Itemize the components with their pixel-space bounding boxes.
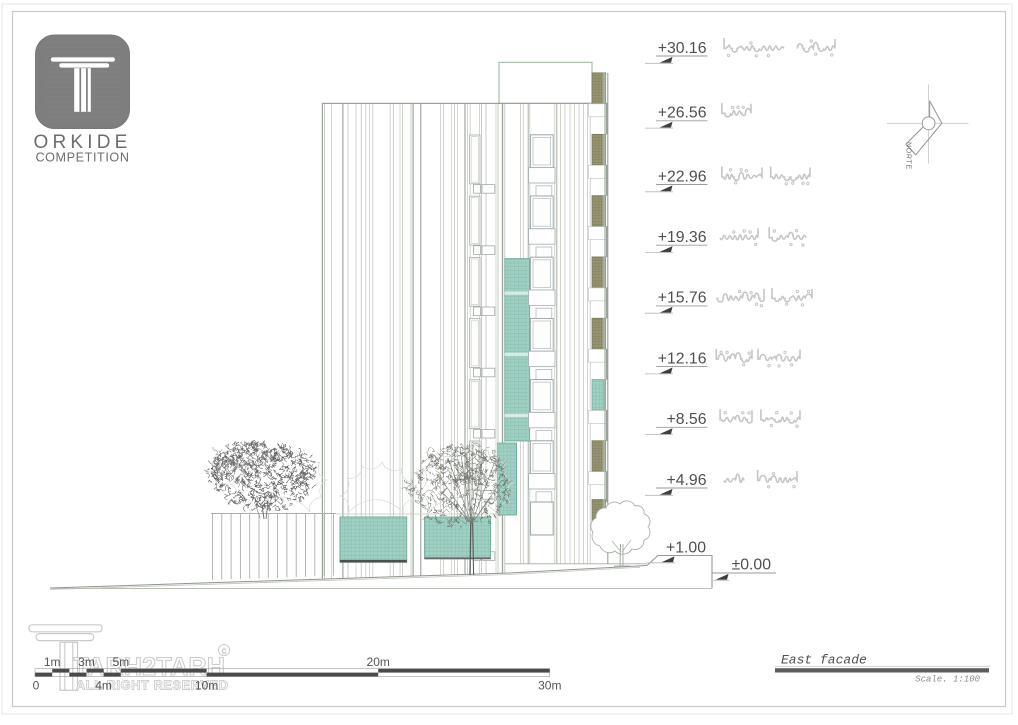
svg-text:+12.16: +12.16 [658,350,707,367]
svg-text:4m: 4m [95,679,112,693]
svg-text:3m: 3m [78,655,95,669]
svg-text:±0.00: ±0.00 [732,556,772,573]
svg-text:NORTE: NORTE [905,142,912,170]
svg-text:1m: 1m [44,655,61,669]
svg-text:+22.96: +22.96 [658,168,707,185]
svg-text:+26.56: +26.56 [658,105,707,122]
svg-text:East facade: East facade [781,653,867,668]
svg-text:COMPETITION: COMPETITION [35,151,129,165]
svg-text:+4.96: +4.96 [667,472,707,489]
svg-text:+8.56: +8.56 [667,411,707,428]
svg-text:+30.16: +30.16 [658,40,707,57]
svg-text:10m: 10m [195,679,218,693]
svg-text:20m: 20m [367,655,390,669]
svg-text:0: 0 [33,679,40,693]
svg-text:+15.76: +15.76 [658,290,707,307]
svg-text:c: c [222,646,227,657]
svg-text:+19.36: +19.36 [658,229,707,246]
svg-text:5m: 5m [112,655,129,669]
svg-text:30m: 30m [538,679,561,693]
svg-text:Scale. 1:100: Scale. 1:100 [915,675,980,685]
svg-text:+1.00: +1.00 [666,539,706,556]
